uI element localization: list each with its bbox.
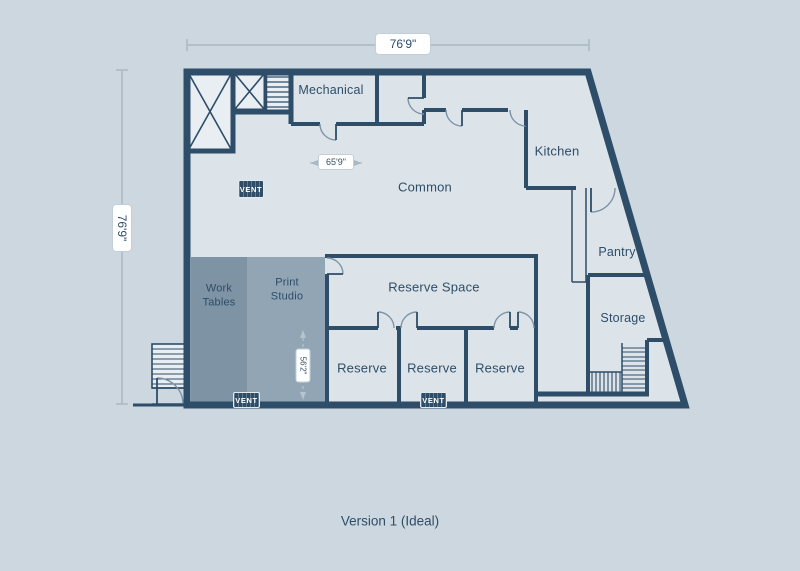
stairs-exterior-left — [133, 344, 187, 405]
room-label-common: Common — [398, 180, 452, 195]
dimension-label-top: 76'9" — [375, 33, 431, 55]
room-label-storage: Storage — [600, 311, 645, 325]
floor-plan-canvas: Mechanical Common Kitchen Pantry Storage… — [0, 0, 800, 571]
dimension-label-studio-height: 56'2" — [296, 349, 311, 383]
room-label-print-studio: Print Studio — [261, 276, 313, 304]
room-label-reserve-3: Reserve — [475, 361, 525, 376]
plan-caption: Version 1 (Ideal) — [341, 514, 439, 529]
vent-badge-studio: VENT — [233, 392, 260, 408]
dimension-label-left: 76'9" — [112, 204, 132, 252]
vent-badge-reserve: VENT — [420, 392, 447, 408]
vent-badge-common: VENT — [238, 180, 264, 198]
work-tables-area — [191, 257, 247, 403]
room-label-reserve-space: Reserve Space — [388, 280, 479, 295]
room-label-reserve-1: Reserve — [337, 361, 387, 376]
dimension-label-common-width: 65'9" — [318, 154, 354, 170]
elevator-shaft-small — [233, 72, 266, 111]
room-label-mechanical: Mechanical — [298, 83, 363, 97]
room-label-pantry: Pantry — [598, 245, 635, 259]
stairs-top-left — [266, 72, 291, 112]
room-label-reserve-2: Reserve — [407, 361, 457, 376]
elevator-shaft-large — [187, 72, 233, 151]
room-label-work-tables: Work Tables — [193, 282, 245, 310]
room-label-kitchen: Kitchen — [535, 144, 580, 159]
